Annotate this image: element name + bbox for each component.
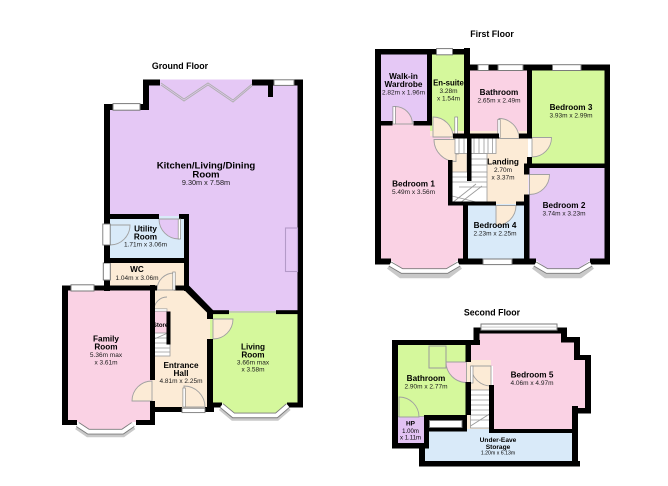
svg-text:x 1.54m: x 1.54m [437, 96, 460, 103]
svg-text:Room: Room [94, 343, 117, 352]
svg-text:Ground Floor: Ground Floor [152, 61, 209, 71]
svg-text:5.36m max: 5.36m max [90, 352, 123, 359]
svg-text:3.28m: 3.28m [439, 88, 457, 95]
svg-text:1.71m x 3.06m: 1.71m x 3.06m [124, 242, 167, 249]
svg-text:Room: Room [134, 233, 157, 242]
svg-text:First Floor: First Floor [470, 29, 514, 39]
svg-text:2.82m x 1.96m: 2.82m x 1.96m [382, 90, 425, 97]
svg-text:WC: WC [130, 265, 144, 274]
svg-text:1.00m: 1.00m [402, 429, 419, 435]
svg-text:Bedroom 2: Bedroom 2 [543, 201, 586, 210]
svg-text:4.81m x 2.25m: 4.81m x 2.25m [160, 378, 203, 385]
svg-text:Room: Room [241, 351, 264, 360]
svg-text:En-suite: En-suite [433, 79, 464, 88]
svg-text:Second Floor: Second Floor [464, 308, 521, 318]
svg-text:2.23m x 2.25m: 2.23m x 2.25m [474, 231, 517, 238]
svg-text:Wardrobe: Wardrobe [385, 80, 423, 89]
svg-text:Bedroom 1: Bedroom 1 [392, 180, 435, 189]
svg-text:Hall: Hall [173, 369, 188, 378]
svg-text:5.49m x 3.56m: 5.49m x 3.56m [392, 189, 435, 196]
svg-text:HP: HP [406, 421, 416, 428]
svg-text:Bathroom: Bathroom [407, 374, 446, 383]
svg-text:x 3.61m: x 3.61m [94, 360, 117, 367]
svg-text:x 1.11m: x 1.11m [400, 436, 421, 442]
svg-text:2.70m: 2.70m [494, 167, 512, 174]
svg-text:Bedroom 5: Bedroom 5 [511, 371, 554, 380]
svg-text:9.30m x 7.58m: 9.30m x 7.58m [182, 178, 230, 187]
svg-text:x 3.58m: x 3.58m [241, 367, 264, 374]
svg-text:x 3.37m: x 3.37m [491, 175, 514, 182]
svg-text:Landing: Landing [487, 158, 519, 167]
svg-text:3.74m x 3.23m: 3.74m x 3.23m [543, 211, 586, 218]
svg-text:Bedroom 3: Bedroom 3 [550, 103, 593, 112]
svg-text:Bathroom: Bathroom [480, 88, 519, 97]
svg-text:3.93m x 2.99m: 3.93m x 2.99m [550, 113, 593, 120]
svg-text:Under-Eave: Under-Eave [480, 437, 517, 444]
svg-text:Bedroom 4: Bedroom 4 [474, 221, 517, 230]
svg-text:2.90m x 2.77m: 2.90m x 2.77m [405, 384, 448, 391]
svg-text:1.20m x 6.13m: 1.20m x 6.13m [481, 451, 515, 457]
svg-text:1.04m x 3.06m: 1.04m x 3.06m [116, 275, 159, 282]
svg-text:2.65m x 2.49m: 2.65m x 2.49m [478, 98, 521, 105]
svg-text:3.66m max: 3.66m max [237, 360, 270, 367]
svg-text:Store: Store [153, 323, 169, 329]
svg-text:4.06m x 4.97m: 4.06m x 4.97m [511, 380, 554, 387]
